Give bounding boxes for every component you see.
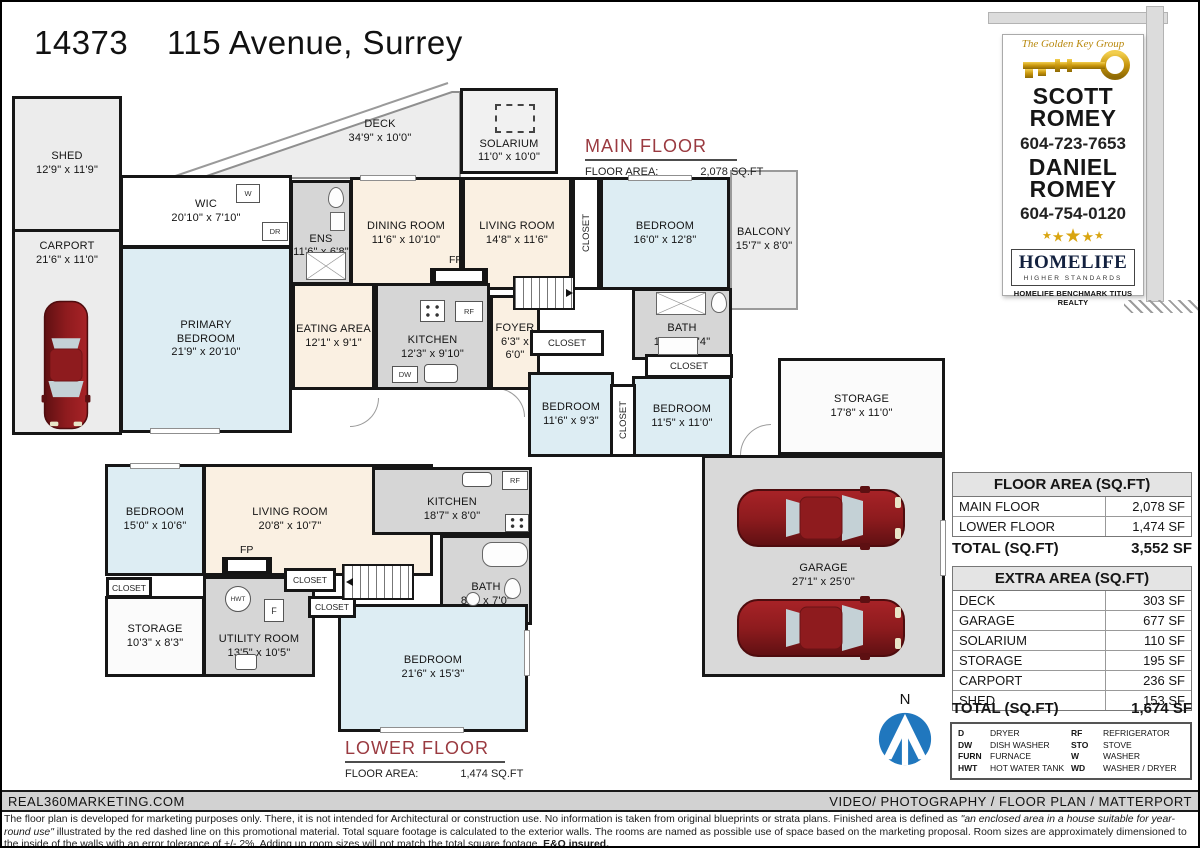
shower-icon: [656, 292, 706, 315]
room-dims: 21'6" x 11'0": [36, 254, 98, 268]
laundry-sink-icon: [235, 654, 257, 670]
kitchen-sink-icon: [462, 472, 492, 487]
room-name: KITCHEN: [424, 496, 481, 510]
homelife-logo: HOMELIFE HIGHER STANDARDS: [1011, 249, 1135, 286]
row-value: 2,078 SF: [1105, 497, 1191, 516]
room-storage-main: STORAGE 17'8" x 11'0": [778, 358, 945, 455]
row-value: 236 SF: [1105, 671, 1191, 690]
kitchen-sink-icon: [424, 364, 458, 383]
extra-area-header: EXTRA AREA (SQ.FT): [953, 567, 1191, 591]
room-name: SHED: [36, 150, 98, 164]
homelife-name: HOMELIFE: [1012, 252, 1134, 274]
closet-lower-left: CLOSET: [106, 577, 152, 598]
table-row: DECK 303 SF: [953, 591, 1191, 611]
stairs-arrow-icon: [566, 289, 573, 297]
disclaimer: The floor plan is developed for marketin…: [4, 814, 1196, 848]
lower-floor-heading: LOWER FLOOR FLOOR AREA: 1,474 SQ.FT: [345, 738, 565, 780]
skylight-icon: [495, 104, 535, 133]
window: [150, 428, 220, 434]
room-primary-bedroom: PRIMARY BEDROOM 21'9" x 20'10": [120, 246, 292, 433]
room-dims: 21'6" x 15'3": [402, 668, 465, 682]
compass-north-label: N: [876, 691, 934, 708]
floor-area-total: TOTAL (SQ.FT) 3,552 SF: [952, 540, 1192, 557]
room-name: BEDROOM: [124, 506, 187, 520]
room-name: BALCONY: [736, 226, 793, 240]
door-arc: [740, 424, 771, 455]
lower-floor-area-label: FLOOR AREA:: [345, 768, 418, 780]
total-label: TOTAL (SQ.FT): [952, 700, 1059, 717]
closet-hall: CLOSET: [572, 177, 600, 290]
garage-label: GARAGE 27'1" x 25'0": [705, 562, 942, 590]
room-dims: 16'0" x 12'8": [634, 234, 697, 248]
room-name: STORAGE: [830, 393, 892, 407]
room-dims: 11'6" x 10'10": [367, 234, 445, 248]
golden-key-logo: The Golden Key Group: [1003, 37, 1143, 83]
room-name: UTILITY ROOM: [219, 633, 299, 647]
lower-floor-area-value: 1,474 SQ.FT: [460, 768, 523, 780]
refrigerator-icon: RF: [455, 301, 483, 322]
room-name: BATH: [654, 322, 711, 336]
garage-car-1: [735, 486, 907, 555]
room-dims: 13'5" x 10'5": [219, 647, 299, 661]
room-dims: 12'9" x 11'9": [36, 164, 98, 178]
toilet-icon: [328, 187, 344, 208]
closet-hall-lower-1: CLOSET: [284, 568, 336, 592]
fireplace-lower: [222, 557, 272, 574]
table-row: GARAGE 677 SF: [953, 611, 1191, 631]
fireplace-main: [430, 268, 488, 284]
legend-item: DWDISH WASHER: [958, 740, 1071, 752]
row-label: LOWER FLOOR: [953, 517, 1061, 536]
agent2-phone: 604-754-0120: [1003, 204, 1143, 224]
room-name: EATING AREA: [296, 323, 371, 337]
closet-bath: CLOSET: [645, 354, 733, 378]
room-name: LIVING ROOM: [252, 506, 328, 520]
compass-icon: [876, 709, 934, 772]
sink-icon: [330, 212, 345, 231]
room-bedroom-ne: BEDROOM 16'0" x 12'8": [600, 177, 730, 290]
homelife-tagline: HIGHER STANDARDS: [1012, 275, 1134, 282]
room-dims: 20'10" x 7'10": [171, 212, 240, 226]
stove-icon: [505, 514, 529, 532]
room-name: PRIMARY BEDROOM: [165, 319, 247, 347]
window: [360, 175, 416, 181]
room-dims: 27'1" x 25'0": [705, 576, 942, 590]
room-name: KITCHEN: [401, 334, 464, 348]
room-dims: 11'5" x 11'0": [651, 417, 712, 431]
window: [130, 463, 180, 469]
dryer-icon: DR: [262, 222, 288, 241]
fireplace-label-main: FP: [449, 254, 462, 266]
extra-area-table: EXTRA AREA (SQ.FT) DECK 303 SF GARAGE 67…: [952, 566, 1192, 711]
dishwasher-icon: DW: [392, 366, 418, 383]
legend-box: DDRYER RFREFRIGERATOR DWDISH WASHER STOS…: [950, 722, 1192, 780]
floor-area-header: FLOOR AREA (SQ.FT): [953, 473, 1191, 497]
room-dims: 11'6" x 9'3": [542, 415, 600, 429]
toilet-icon: [504, 578, 521, 599]
closet-between-bedrooms: CLOSET: [610, 384, 636, 457]
five-stars-icon: ★★★★★: [1003, 227, 1143, 246]
room-dims: 18'7" x 8'0": [424, 510, 481, 524]
golden-key-text: The Golden Key Group: [1003, 38, 1143, 50]
main-floor-heading: MAIN FLOOR FLOOR AREA: 2,078 SQ.FT: [585, 136, 785, 178]
footer-left: REAL360MARKETING.COM: [8, 794, 185, 809]
table-row: SOLARIUM 110 SF: [953, 631, 1191, 651]
legend-item: DDRYER: [958, 728, 1071, 740]
room-dims: 12'3" x 9'10": [401, 348, 464, 362]
row-value: 195 SF: [1105, 651, 1191, 670]
lower-floor-rule: [345, 761, 505, 763]
room-name: BEDROOM: [402, 654, 465, 668]
agent1-last: ROMEY: [1003, 108, 1143, 130]
main-floor-area-value: 2,078 SQ.FT: [700, 166, 763, 178]
door-arc: [496, 388, 525, 417]
window: [940, 520, 946, 576]
total-label: TOTAL (SQ.FT): [952, 540, 1059, 557]
room-name: GARAGE: [705, 562, 942, 576]
legend-item: RFREFRIGERATOR: [1071, 728, 1184, 740]
room-dims: 34'9" x 10'0": [330, 132, 430, 146]
room-balcony: BALCONY 15'7" x 8'0": [730, 170, 798, 310]
legend-item: FURNFURNACE: [958, 751, 1071, 763]
sign-post-arm: [988, 12, 1168, 24]
hot-water-tank-icon: HWT: [225, 586, 251, 612]
room-dims: 17'8" x 11'0": [830, 407, 892, 421]
footer-bar: REAL360MARKETING.COM VIDEO/ PHOTOGRAPHY …: [0, 790, 1200, 812]
room-dims: 10'3" x 8'3": [127, 637, 184, 651]
row-label: MAIN FLOOR: [953, 497, 1046, 516]
room-name: DECK: [330, 118, 430, 132]
row-label: GARAGE: [953, 611, 1021, 630]
footer-right: VIDEO/ PHOTOGRAPHY / FLOOR PLAN / MATTER…: [829, 794, 1192, 809]
agent2-name: DANIEL ROMEY: [1003, 157, 1143, 201]
room-dims: 15'7" x 8'0": [736, 240, 793, 254]
room-deck-label: DECK 34'9" x 10'0": [330, 118, 430, 146]
garage-car-2: [735, 596, 907, 665]
row-label: SOLARIUM: [953, 631, 1033, 650]
shower-icon: [306, 252, 346, 280]
room-solarium: SOLARIUM 11'0" x 10'0": [460, 88, 558, 174]
extra-area-total: TOTAL (SQ.FT) 1,674 SF: [952, 700, 1192, 717]
table-row: MAIN FLOOR 2,078 SF: [953, 497, 1191, 517]
room-name: ENS: [293, 233, 349, 247]
room-name: CARPORT: [36, 240, 98, 254]
table-row: CARPORT 236 SF: [953, 671, 1191, 691]
bath-sink-icon: [466, 592, 480, 606]
row-label: DECK: [953, 591, 1001, 610]
total-value: 1,674 SF: [1131, 700, 1192, 717]
room-bedroom-nw: BEDROOM 15'0" x 10'6": [105, 464, 205, 576]
room-name: BEDROOM: [651, 403, 712, 417]
row-value: 677 SF: [1105, 611, 1191, 630]
room-dims: 14'8" x 11'6": [479, 234, 555, 248]
closet-foyer: CLOSET: [530, 330, 604, 356]
legend-item: STOSTOVE: [1071, 740, 1184, 752]
main-floor-rule: [585, 159, 737, 161]
row-value: 303 SF: [1105, 591, 1191, 610]
bath-sink-icon: [658, 337, 698, 355]
disclaimer-bold: E&O insured.: [543, 839, 609, 848]
table-row: STORAGE 195 SF: [953, 651, 1191, 671]
room-name: SOLARIUM: [478, 138, 540, 152]
room-bedroom-s-lower: BEDROOM 21'6" x 15'3": [338, 604, 528, 732]
row-value: 110 SF: [1105, 631, 1191, 650]
stove-icon: [420, 300, 445, 322]
bathtub-icon: [482, 542, 528, 567]
disclaimer-text: The floor plan is developed for marketin…: [4, 814, 961, 825]
sign-post: [1146, 6, 1164, 302]
main-floor-area-label: FLOOR AREA:: [585, 166, 658, 178]
lower-floor-title: LOWER FLOOR: [345, 738, 565, 759]
room-eating-area: EATING AREA 12'1" x 9'1": [292, 283, 375, 390]
room-name: DINING ROOM: [367, 220, 445, 234]
room-name: BEDROOM: [634, 220, 697, 234]
legend-item: WDWASHER / DRYER: [1071, 763, 1184, 775]
agent-card: The Golden Key Group SCOTT ROMEY 604-723…: [1002, 34, 1144, 296]
row-label: CARPORT: [953, 671, 1028, 690]
floor-plan-page: 14373 115 Avenue, Surrey The Golden Key …: [0, 0, 1200, 848]
washer-icon: W: [236, 184, 260, 203]
door-arc: [350, 398, 379, 427]
window: [380, 727, 464, 733]
floor-area-table: FLOOR AREA (SQ.FT) MAIN FLOOR 2,078 SF L…: [952, 472, 1192, 537]
agent1-phone: 604-723-7653: [1003, 134, 1143, 154]
agent2-last: ROMEY: [1003, 179, 1143, 201]
toilet-icon: [711, 292, 727, 313]
window: [524, 630, 530, 676]
carport-car: [34, 300, 98, 430]
room-shed: SHED 12'9" x 11'9": [12, 96, 122, 232]
agent1-name: SCOTT ROMEY: [1003, 86, 1143, 130]
room-storage-lower: STORAGE 10'3" x 8'3": [105, 596, 205, 677]
total-value: 3,552 SF: [1131, 540, 1192, 557]
room-bedroom-s2: BEDROOM 11'5" x 11'0": [632, 376, 732, 457]
room-dims: 15'0" x 10'6": [124, 520, 187, 534]
brokerage-name: HOMELIFE BENCHMARK TITUS REALTY: [1003, 289, 1143, 307]
row-value: 1,474 SF: [1105, 517, 1191, 536]
page-title: 14373 115 Avenue, Surrey: [34, 24, 463, 62]
row-label: STORAGE: [953, 651, 1028, 670]
stairs-arrow-icon: [346, 578, 353, 586]
refrigerator-icon: RF: [502, 471, 528, 490]
legend-item: WWASHER: [1071, 751, 1184, 763]
room-dims: 12'1" x 9'1": [296, 337, 371, 351]
room-name: WIC: [171, 198, 240, 212]
room-name: BEDROOM: [542, 401, 600, 415]
room-name: STORAGE: [127, 623, 184, 637]
table-row: LOWER FLOOR 1,474 SF: [953, 517, 1191, 536]
room-dims: 21'9" x 20'10": [165, 346, 247, 360]
main-floor-title: MAIN FLOOR: [585, 136, 785, 157]
room-name: LIVING ROOM: [479, 220, 555, 234]
room-dims: 20'8" x 10'7": [252, 520, 328, 534]
fireplace-label-lower: FP: [240, 544, 253, 556]
furnace-icon: F: [264, 599, 284, 622]
room-bedroom-s1: BEDROOM 11'6" x 9'3": [528, 372, 614, 457]
room-dims: 11'0" x 10'0": [478, 151, 540, 165]
legend-item: HWTHOT WATER TANK: [958, 763, 1071, 775]
